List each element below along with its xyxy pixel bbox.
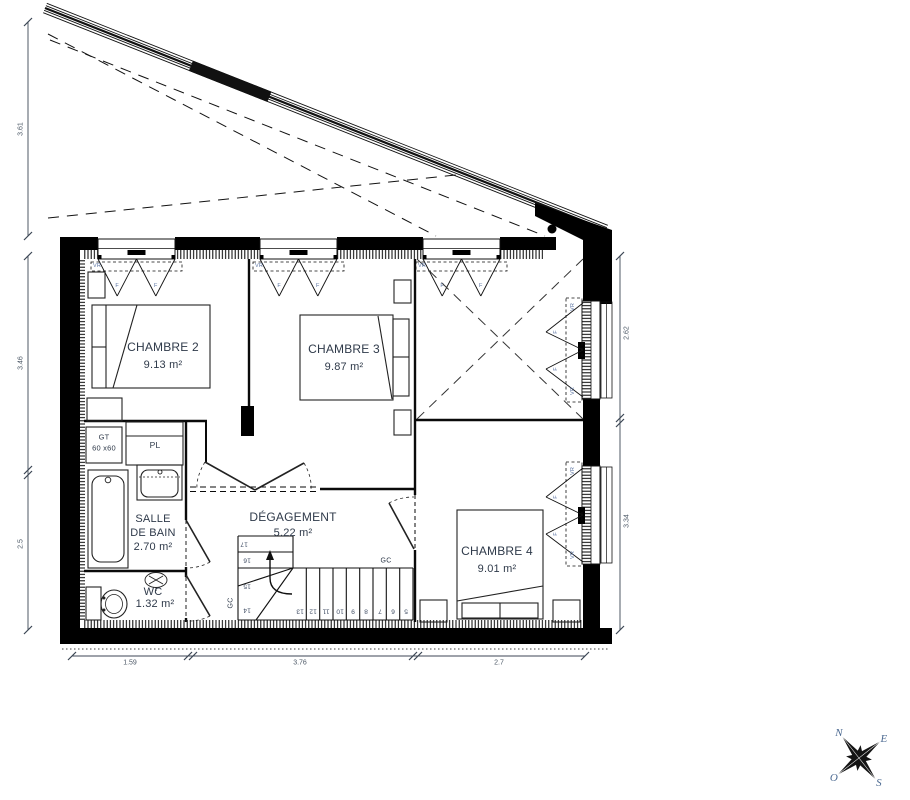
nightstand xyxy=(553,600,580,622)
exterior-walls xyxy=(60,203,612,649)
f-label: F xyxy=(553,367,559,371)
stair-step-6: 6 xyxy=(391,608,395,615)
room-label-salle-de-bain-1: SALLE xyxy=(135,513,170,525)
room-label-wc: WC xyxy=(144,586,163,598)
wall-stub xyxy=(241,406,254,436)
stair-step-9: 9 xyxy=(351,608,355,615)
room-area-wc: 1.32 m² xyxy=(136,598,175,610)
dresser xyxy=(87,398,122,421)
vr-label: VR xyxy=(570,551,576,559)
bathtub xyxy=(88,470,128,568)
f-label: F xyxy=(440,283,444,289)
dim-left-top: 3.61 xyxy=(18,122,25,136)
nightstand xyxy=(88,272,105,298)
floor-plan-drawing xyxy=(0,0,910,800)
pl-label: PL xyxy=(150,440,161,450)
roof-lines xyxy=(43,3,608,236)
compass-rose xyxy=(821,720,897,796)
stair-step-15: 15 xyxy=(243,583,251,590)
roof-projection-dashed-3 xyxy=(50,40,545,236)
dim-right-upper: 2.62 xyxy=(624,326,631,340)
vr-label: VR xyxy=(255,263,263,269)
gc-label: GC xyxy=(381,558,392,565)
dim-left-lower: 2.5 xyxy=(18,539,25,549)
room-area-chambre3: 9.87 m² xyxy=(325,361,364,373)
nightstand xyxy=(394,280,411,303)
f-label: F xyxy=(553,495,559,499)
room-area-chambre2: 9.13 m² xyxy=(144,359,183,371)
f-label: F xyxy=(316,283,320,289)
window-right-upper xyxy=(546,298,612,402)
toilet xyxy=(86,587,127,620)
window-chambre3 xyxy=(253,239,344,296)
compass-letter-west: O xyxy=(830,772,838,784)
room-label-salle-de-bain-2: DE BAIN xyxy=(130,527,175,539)
stair-step-11: 11 xyxy=(323,608,330,615)
vr-label: VR xyxy=(418,263,426,269)
stair-step-7: 7 xyxy=(378,608,382,615)
vr-label: VR xyxy=(570,387,576,395)
stairs-direction-arrow xyxy=(270,558,292,594)
gt-label: GT xyxy=(99,433,110,442)
f-label: F xyxy=(553,532,559,536)
window-void xyxy=(416,239,507,296)
stair-step-12: 12 xyxy=(309,608,317,615)
room-label-chambre2: CHAMBRE 2 xyxy=(127,340,199,354)
stair-step-5: 5 xyxy=(404,608,408,615)
door-wc-leaf xyxy=(186,575,210,616)
f-label: F xyxy=(115,283,119,289)
gc-label-vertical: GC xyxy=(228,598,235,609)
roof-thick-segment xyxy=(191,66,270,97)
doors xyxy=(186,462,414,621)
dim-bottom-1: 1.59 xyxy=(123,660,137,667)
door-bathroom-leaf xyxy=(186,520,210,562)
stair-step-14: 14 xyxy=(243,607,251,614)
f-label: F xyxy=(154,283,158,289)
floor-plan-canvas: CHAMBRE 2 9.13 m² CHAMBRE 3 9.87 m² CHAM… xyxy=(0,0,910,800)
windows-right xyxy=(546,298,612,566)
room-label-chambre4: CHAMBRE 4 xyxy=(461,544,533,558)
gt-size-label: 60 x60 xyxy=(92,444,116,453)
compass-letter-north: N xyxy=(835,727,843,739)
stair-step-8: 8 xyxy=(364,608,368,615)
roof-projection-dashed-1 xyxy=(48,34,436,236)
dim-bottom-2: 3.76 xyxy=(293,660,307,667)
dim-right-lower: 3.34 xyxy=(624,514,631,528)
vr-label: VR xyxy=(570,467,576,475)
window-right-lower xyxy=(546,462,612,566)
stair-step-16: 16 xyxy=(243,557,251,564)
f-label: F xyxy=(553,330,559,334)
dim-left-upper: 3.46 xyxy=(18,356,25,370)
room-area-chambre4: 9.01 m² xyxy=(478,563,517,575)
dimension-lines xyxy=(24,18,624,660)
roof-corner-wall xyxy=(535,203,612,304)
dim-bottom-3: 2.7 xyxy=(494,660,504,667)
nightstand xyxy=(420,600,447,622)
stair-step-17: 17 xyxy=(240,541,248,548)
f-label: F xyxy=(277,283,281,289)
room-label-degagement: DÉGAGEMENT xyxy=(249,510,336,524)
vr-label: VR xyxy=(93,263,101,269)
door-chambre2-leaf xyxy=(205,462,255,490)
nightstand xyxy=(394,410,411,435)
compass-letter-south: S xyxy=(876,777,882,789)
door-chambre3-leaf xyxy=(255,463,304,490)
door-chambre4-leaf xyxy=(389,503,414,549)
room-label-chambre3: CHAMBRE 3 xyxy=(308,342,380,356)
bed-chambre3 xyxy=(300,315,409,400)
vr-label: VR xyxy=(570,303,576,311)
f-label: F xyxy=(479,283,483,289)
room-area-salle-de-bain: 2.70 m² xyxy=(134,541,173,553)
stair-step-13: 13 xyxy=(296,608,304,615)
compass-letter-east: E xyxy=(881,733,888,745)
stair-step-10: 10 xyxy=(336,608,344,615)
sink xyxy=(137,465,182,500)
roof-projection-dashed-2 xyxy=(48,174,465,218)
room-area-degagement: 5.22 m² xyxy=(274,527,313,539)
